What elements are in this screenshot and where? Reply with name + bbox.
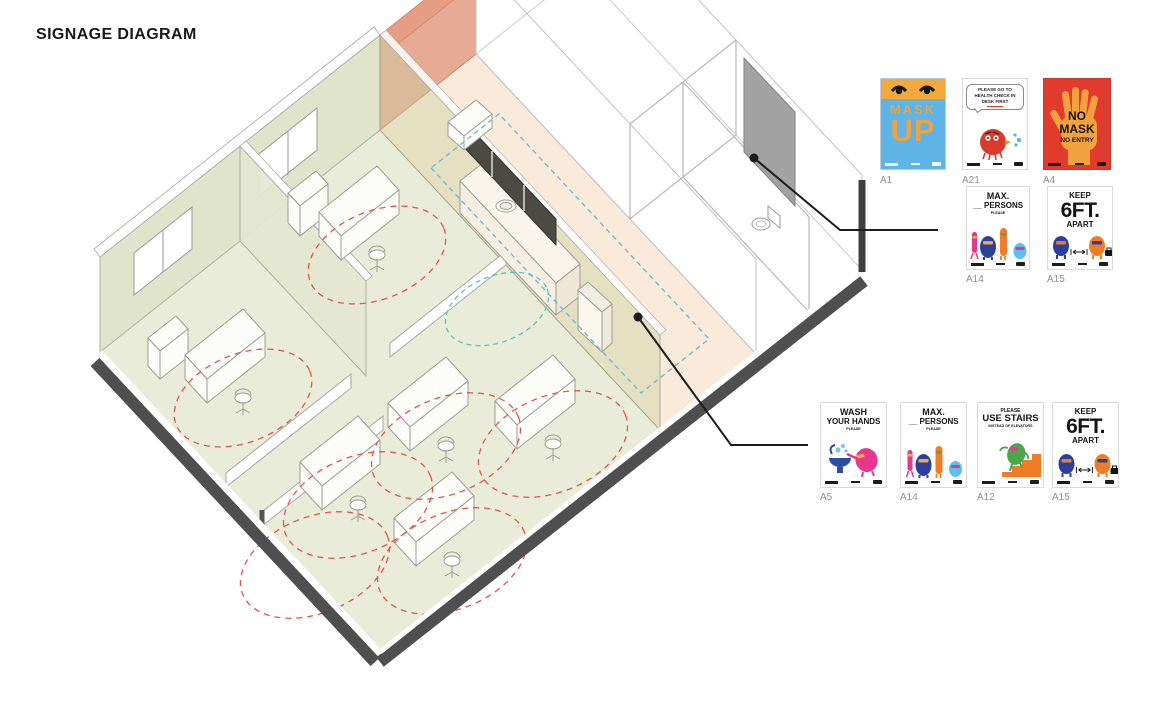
distanced-characters-icon: [1048, 232, 1113, 260]
kitchen-sink: [496, 200, 516, 212]
poster-label: A21: [962, 175, 980, 186]
poster-headline: __ PERSONS: [967, 202, 1029, 211]
briefcase-icon: [1111, 468, 1119, 474]
poster-footer-logos: [885, 162, 941, 166]
poster-footer-logos: [1057, 480, 1114, 484]
poster-label: A5: [820, 492, 832, 503]
bubble-line: HEALTH CHECK IN: [968, 93, 1022, 99]
blob-characters-icon: [901, 444, 967, 478]
poster-headline: UP: [881, 117, 945, 144]
poster-label: A12: [977, 492, 995, 503]
red-note-bar: [987, 106, 1003, 108]
poster-a15-keep-6ft-apart: KEEP 6FT. APART: [1047, 186, 1113, 270]
arrow-icon: [1077, 467, 1093, 473]
poster-footer-logos: [1052, 262, 1108, 266]
poster-headline: USE STAIRS: [978, 414, 1043, 424]
poster-a1-mask-up: MASK UP: [880, 78, 946, 170]
distanced-characters-icon: [1053, 450, 1119, 478]
speech-bubble: PLEASE GO TO HEALTH CHECK IN DESK FIRST: [966, 84, 1024, 110]
blob-characters-icon: [967, 226, 1030, 260]
poster-label: A4: [1043, 175, 1055, 186]
hand-washing-icon: [821, 440, 887, 478]
poster-footer-logos: [1048, 162, 1106, 166]
poster-subline: INSTEAD OF ELEVATORS: [978, 424, 1043, 428]
poster-headline: 6FT.: [1053, 417, 1118, 437]
poster-label: A14: [900, 492, 918, 503]
poster-a4-no-mask-no-entry: NO MASK NO ENTRY: [1043, 78, 1111, 170]
poster-headline: 6FT.: [1048, 201, 1112, 221]
poster-headline: NO: [1044, 109, 1110, 123]
poster-subline: PLEASE: [967, 211, 1029, 215]
poster-label: A1: [880, 175, 892, 186]
poster-subline: APART: [1048, 221, 1112, 230]
poster-footer-logos: [967, 162, 1023, 166]
poster-a15-keep-6ft-apart: KEEP 6FT. APART: [1052, 402, 1119, 488]
poster-headline: __ PERSONS: [901, 418, 966, 427]
poster-a5-wash-your-hands: WASH YOUR HANDS PLEASE: [820, 402, 887, 488]
poster-subline: PLEASE: [901, 427, 966, 431]
poster-a12-use-stairs: PLEASE USE STAIRS INSTEAD OF ELEVATORS: [977, 402, 1044, 488]
poster-a21-health-check: PLEASE GO TO HEALTH CHECK IN DESK FIRST: [962, 78, 1028, 170]
poster-label: A15: [1052, 492, 1070, 503]
sneezing-bird-icon: [963, 124, 1028, 160]
poster-footer-logos: [905, 480, 962, 484]
arrow-icon: [1071, 249, 1087, 255]
stairs-climbing-icon: [978, 442, 1044, 478]
poster-subline: APART: [1053, 437, 1118, 446]
eyes-icon: [881, 79, 945, 99]
poster-headline: YOUR HANDS: [821, 418, 886, 427]
briefcase-icon: [1105, 250, 1113, 256]
bubble-line: DESK FIRST: [968, 99, 1022, 105]
poster-label: A14: [966, 274, 984, 285]
poster-footer-logos: [971, 262, 1025, 266]
page-title: SIGNAGE DIAGRAM: [36, 26, 197, 44]
poster-subline: PLEASE: [821, 427, 886, 431]
poster-a14-max-persons: MAX. __ PERSONS PLEASE: [966, 186, 1030, 270]
poster-label: A15: [1047, 274, 1065, 285]
poster-subline: NO ENTRY: [1044, 137, 1110, 144]
poster-footer-logos: [982, 480, 1039, 484]
poster-footer-logos: [825, 480, 882, 484]
poster-a14-max-persons: MAX. __ PERSONS PLEASE: [900, 402, 967, 488]
signage-diagram-page: SIGNAGE DIAGRAM MASK UP A1 PLEASE GO TO …: [0, 0, 1160, 701]
poster-headline: MASK: [1044, 122, 1110, 136]
